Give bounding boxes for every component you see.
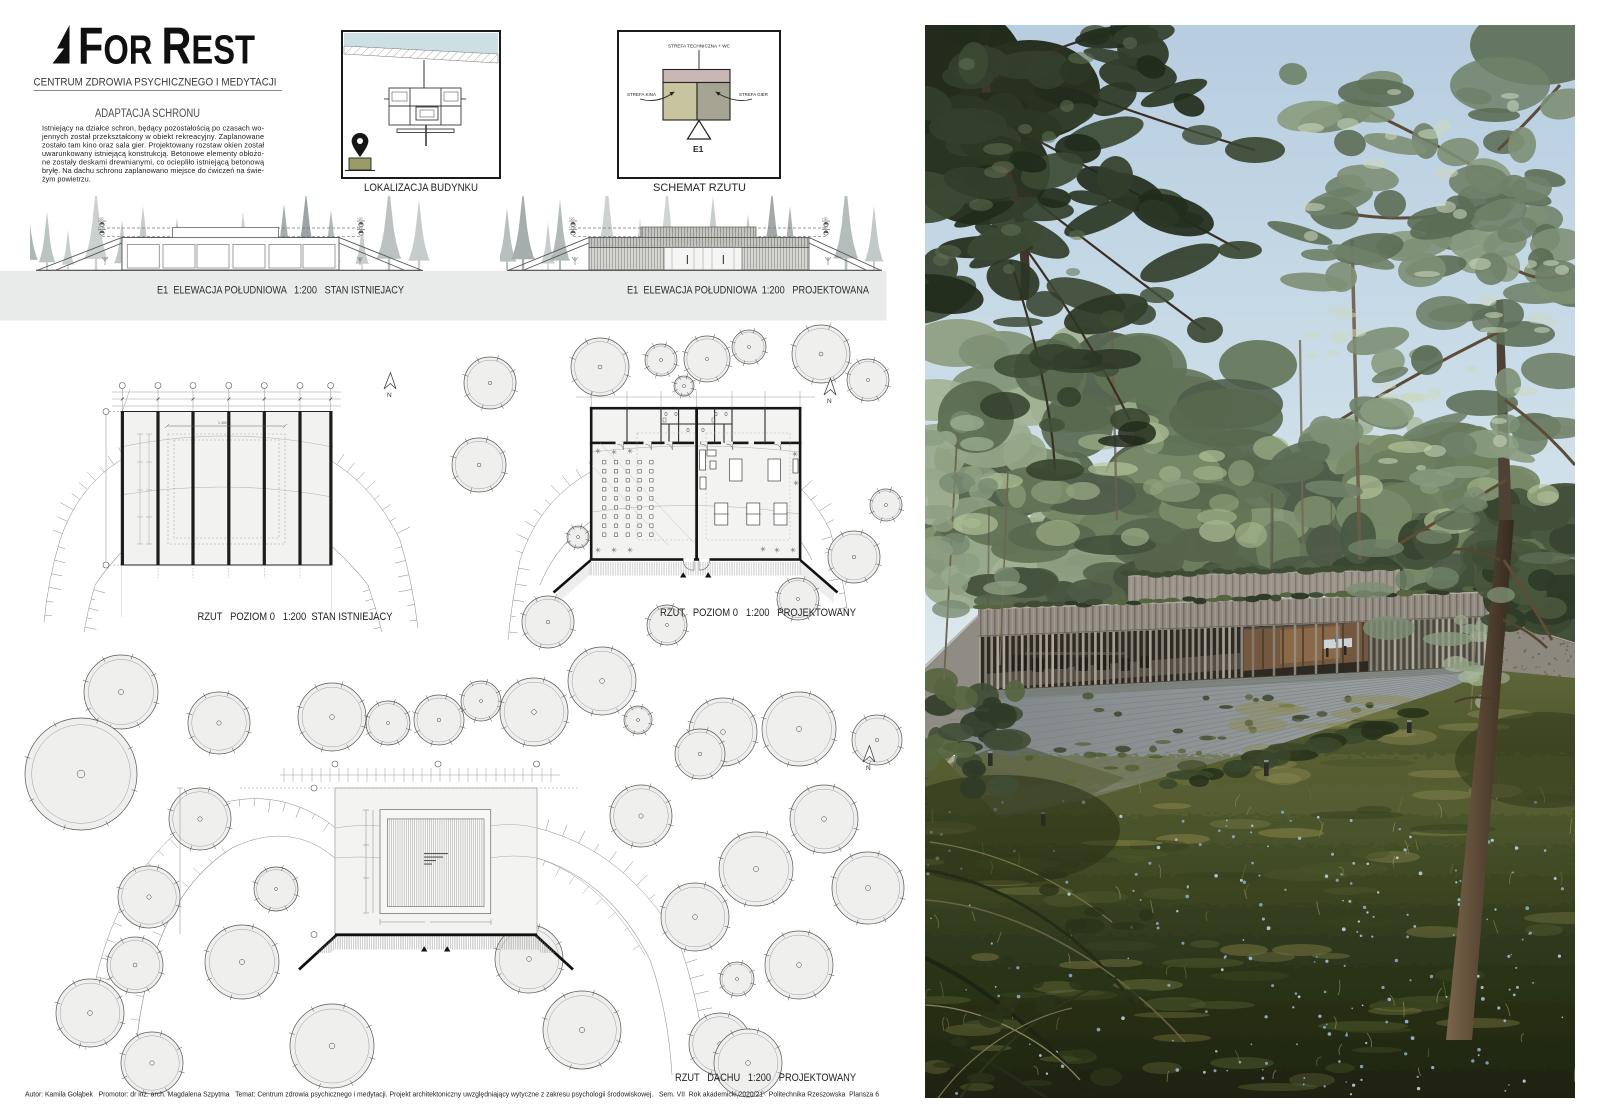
svg-text:+20: +20 [569, 217, 575, 221]
svg-text:RZUT POZIOM 0 1:200 STAN: RZUT POZIOM 0 1:200 STAN ISTNIEJACY [198, 611, 393, 623]
svg-text:SCHEMAT RZUTU: SCHEMAT RZUTU [653, 182, 746, 194]
svg-text:N: N [827, 398, 832, 405]
svg-text:FOR REST: FOR REST [78, 18, 255, 76]
svg-text:Autor: Kamila Gołąbek Promot: Autor: Kamila Gołąbek Promotor: dr inż. … [25, 1090, 879, 1099]
svg-text:LOKALIZACJA BUDYNKU: LOKALIZACJA BUDYNKU [364, 182, 478, 194]
svg-text:E1 ELEWACJA POŁUDNIOWA 1:200: E1 ELEWACJA POŁUDNIOWA 1:200 PROJEKTOWAN… [627, 285, 869, 297]
svg-text:N: N [866, 765, 871, 772]
svg-text:STREFA TECHNICZNA + WC: STREFA TECHNICZNA + WC [668, 44, 731, 50]
svg-text:1 400: 1 400 [218, 421, 227, 425]
svg-text:STREFA KINA: STREFA KINA [627, 92, 657, 98]
svg-text:E1 ELEWACJA POŁUDNIOWA 1:20: E1 ELEWACJA POŁUDNIOWA 1:200 STAN ISTNIE… [157, 285, 404, 297]
svg-text:+20: +20 [822, 226, 828, 230]
svg-text:żym powietrzu.: żym powietrzu. [42, 174, 91, 183]
svg-text:CENTRUM ZDROWIA PSYCHICZNEGO I: CENTRUM ZDROWIA PSYCHICZNEGO I MEDYTACJI [34, 77, 277, 89]
svg-text:+20: +20 [822, 217, 828, 221]
svg-text:+20: +20 [98, 226, 104, 230]
svg-text:ADAPTACJA SCHRONU: ADAPTACJA SCHRONU [95, 108, 200, 120]
svg-text:+20: +20 [98, 217, 104, 221]
svg-text:RZUT DACHU 1:200 PROJEKT: RZUT DACHU 1:200 PROJEKTOWANY [675, 1072, 856, 1084]
svg-text:STREFA GIER: STREFA GIER [739, 92, 768, 98]
svg-text:+20: +20 [357, 217, 363, 221]
svg-text:N: N [387, 392, 392, 399]
svg-text:+20: +20 [357, 226, 363, 230]
svg-text:+20: +20 [569, 226, 575, 230]
svg-text:RZUT POZIOM 0 1:200 PROJ: RZUT POZIOM 0 1:200 PROJEKTOWANY [660, 607, 856, 619]
svg-text:E1: E1 [693, 144, 704, 154]
